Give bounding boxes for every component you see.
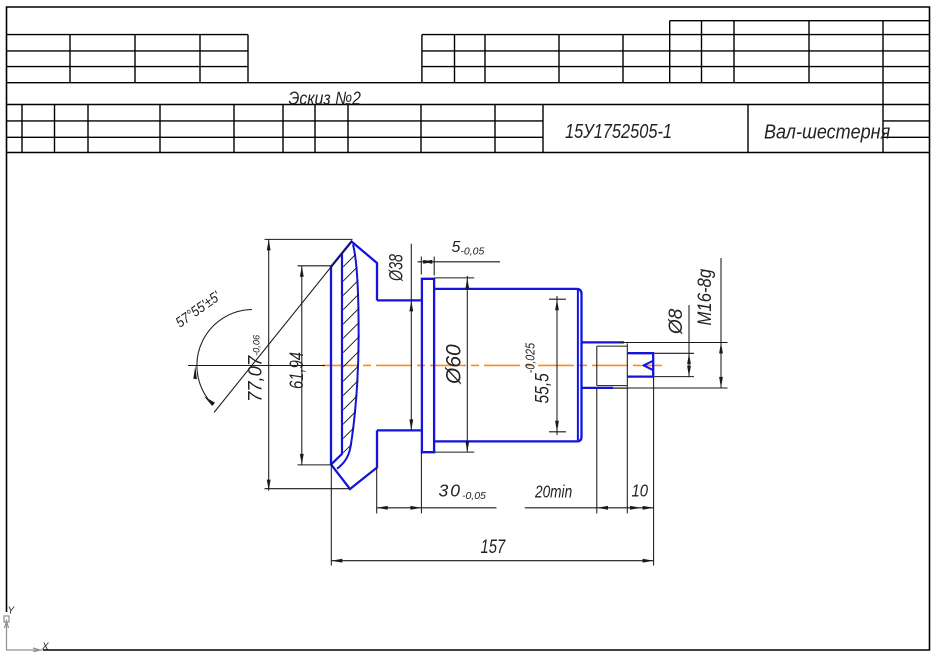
- svg-text:Вал-шестерня: Вал-шестерня: [764, 122, 890, 144]
- svg-text:15У1752505-1: 15У1752505-1: [565, 119, 672, 142]
- svg-text:20min: 20min: [534, 483, 572, 502]
- svg-text:X: X: [41, 642, 49, 652]
- svg-text:Эскиз №2: Эскиз №2: [289, 87, 362, 109]
- svg-text:Ø8: Ø8: [666, 308, 687, 335]
- svg-text:Ø38: Ø38: [386, 254, 407, 282]
- svg-text:Ø60: Ø60: [443, 344, 466, 385]
- svg-text:M16-8g: M16-8g: [694, 269, 715, 326]
- svg-text:10: 10: [632, 481, 649, 500]
- svg-text:157: 157: [481, 536, 506, 557]
- svg-text:61,94: 61,94: [286, 352, 307, 389]
